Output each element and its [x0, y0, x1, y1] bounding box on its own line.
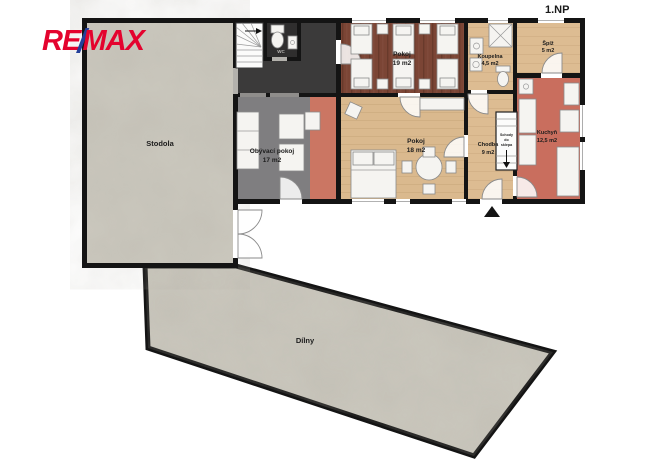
- threshold-hall-living-1: [240, 93, 266, 97]
- hallway-label: Chodba: [478, 142, 499, 148]
- double-door-leaf-top: [238, 210, 262, 234]
- kitchen-label: Kuchyň: [537, 130, 558, 136]
- kitchen-counter: [564, 83, 579, 105]
- door-gap-hallway-kitchen: [513, 176, 517, 196]
- window: [352, 18, 386, 23]
- wall-wc-right: [297, 23, 301, 61]
- chair: [423, 184, 435, 194]
- logo-re: RE: [42, 25, 80, 57]
- bed: [393, 24, 414, 54]
- kitchen-counter: [519, 135, 536, 165]
- floor-level-label: 1.NP: [545, 4, 569, 16]
- kitchen-counter: [519, 99, 536, 133]
- bench: [420, 98, 464, 110]
- dilny-floor-texture: [130, 250, 570, 468]
- basement-stairs-label-3: sklepa: [501, 143, 513, 147]
- bedroom19-area: 19 m2: [393, 60, 412, 67]
- living-room-label: Obývací pokoj: [250, 148, 295, 155]
- wall-wc-left: [263, 23, 267, 61]
- bathroom-label: Koupelna: [477, 54, 503, 60]
- bed: [437, 59, 458, 89]
- window: [452, 199, 466, 204]
- chair: [446, 161, 456, 173]
- window: [352, 199, 384, 204]
- wall-stodola-bottom: [82, 263, 238, 268]
- door-gap-living-outside: [280, 199, 302, 204]
- armchair: [279, 114, 304, 139]
- toilet-icon: [271, 25, 284, 48]
- kitchen-counter: [557, 147, 579, 196]
- bed: [351, 59, 372, 89]
- kitchen-area: 12,5 m2: [537, 138, 557, 144]
- door-gap-bath-hallway: [471, 90, 487, 94]
- sink-icon: [288, 36, 297, 49]
- logo-max: MAX: [82, 25, 143, 57]
- dilny-label: Dílny: [296, 336, 315, 345]
- room-dilny: Dílny: [130, 250, 570, 468]
- stove-icon: [519, 79, 533, 94]
- door-gap-main-entrance: [480, 199, 502, 204]
- living-room-area: 17 m2: [263, 157, 282, 164]
- wall-right-vertical: [464, 23, 468, 199]
- stodola-label: Stodola: [146, 139, 174, 148]
- door-gap-hall-bedroom19: [336, 40, 341, 64]
- window: [488, 18, 508, 23]
- kitchen-counter: [560, 110, 579, 132]
- door-gap-stodola-hall: [233, 68, 238, 94]
- toilet-icon: [496, 66, 510, 87]
- pantry-label: Špíž: [542, 39, 554, 47]
- nightstand: [377, 79, 388, 89]
- window: [580, 142, 585, 170]
- wall-top: [82, 18, 585, 23]
- door-gap-bedrooms: [398, 93, 420, 97]
- bed: [437, 24, 458, 54]
- bedroom19-label: Pokoj: [393, 51, 411, 58]
- double-bed: [351, 150, 396, 198]
- floorplan-svg: Dílny: [0, 0, 662, 468]
- shower-icon: [489, 24, 512, 47]
- staircase-basement: Schody do sklepa: [496, 112, 517, 170]
- nightstand: [419, 79, 430, 89]
- staircase-main: [236, 23, 263, 68]
- washbasin-icon: [470, 38, 483, 54]
- nightstand: [419, 24, 430, 34]
- bedroom18-label: Pokoj: [407, 138, 425, 145]
- sofa: [237, 112, 259, 169]
- door-gap-stodola-outside: [233, 210, 238, 258]
- bathroom-area: 4,5 m2: [481, 61, 498, 67]
- window: [580, 105, 585, 137]
- door-gap-wc: [272, 57, 287, 61]
- window: [538, 18, 564, 23]
- double-door-leaf-bottom: [238, 234, 262, 258]
- window: [420, 18, 455, 23]
- basement-stairs-label-1: Schody: [500, 133, 513, 137]
- side-table: [305, 112, 320, 130]
- hallway-area: 9 m2: [482, 150, 495, 156]
- pantry-area: 5 m2: [542, 48, 555, 54]
- bed: [351, 24, 372, 54]
- threshold-hall-living-2: [270, 93, 299, 97]
- bedroom18-area: 18 m2: [407, 147, 426, 154]
- remax-logo: RE/MAX: [42, 24, 144, 57]
- door-gap-bedroom18-hallway: [464, 135, 468, 157]
- entrance-arrow-icon: [484, 206, 500, 217]
- window: [396, 199, 410, 204]
- floorplan-canvas: RE/MAX 1.NP: [0, 0, 662, 468]
- wc-label: WC: [277, 49, 285, 54]
- nightstand: [377, 24, 388, 34]
- chair: [402, 161, 412, 173]
- door-gap-pantry: [541, 73, 562, 78]
